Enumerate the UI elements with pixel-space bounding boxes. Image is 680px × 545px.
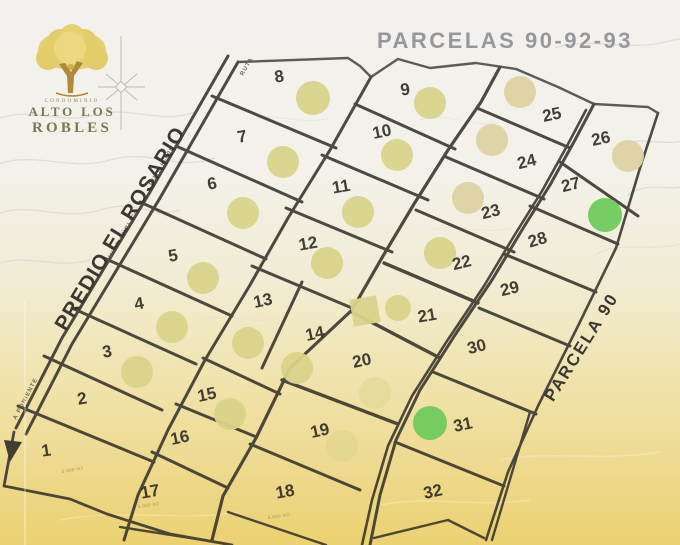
parcel-label-32: 32 [422,480,444,503]
parcel-label-20: 20 [351,349,373,372]
parcel-label-21: 21 [416,305,438,327]
marker-dot-tan [504,76,536,108]
parcel-label-13: 13 [252,289,274,312]
marker-dot-pale [281,352,313,384]
parcel-label-17: 17 [139,481,161,503]
scan-streak [24,300,26,545]
marker-dot-pale [359,377,391,409]
marker-dot-pale [296,81,330,115]
marker-dot-pale [156,311,188,343]
marker-dot-green [588,198,622,232]
marker-square [349,295,380,326]
marker-dot-pale [232,327,264,359]
marker-dot-pale [381,139,413,171]
marker-dot-pale [121,356,153,388]
marker-dot-pale [214,398,246,430]
marker-dot-pale [227,197,259,229]
marker-dot-pale [267,146,299,178]
parcel-label-31: 31 [452,413,474,436]
parcel-label-18: 18 [274,481,296,503]
marker-dot-pale [326,430,358,462]
map-title: PARCELAS 90-92-93 [377,28,633,53]
parcel-label-11: 11 [331,176,352,198]
marker-dot-tan [612,140,644,172]
marker-dot-pale [414,87,446,119]
marker-dot-pale [424,237,456,269]
marker-dot-tan [452,182,484,214]
parcel-label-19: 19 [309,419,331,442]
parcel-label-15: 15 [196,383,218,406]
plat-map: 8925267102427611232851222294131421303202… [0,0,680,545]
parcel-label-12: 12 [297,233,319,255]
logo-robles-text: ROBLES [32,120,112,136]
parcel-label-16: 16 [169,426,191,449]
marker-dot-pale [385,295,411,321]
parcel-label-25: 25 [541,103,563,126]
parcel-label-10: 10 [371,120,393,143]
logo-alto-los-text: ALTO LOS [28,104,115,119]
marker-dot-pale [342,196,374,228]
marker-dot-green [413,406,447,440]
marker-dot-pale [187,262,219,294]
plat-svg: 8925267102427611232851222294131421303202… [0,0,680,545]
parcel-label-26: 26 [590,127,612,150]
marker-dot-tan [476,124,508,156]
